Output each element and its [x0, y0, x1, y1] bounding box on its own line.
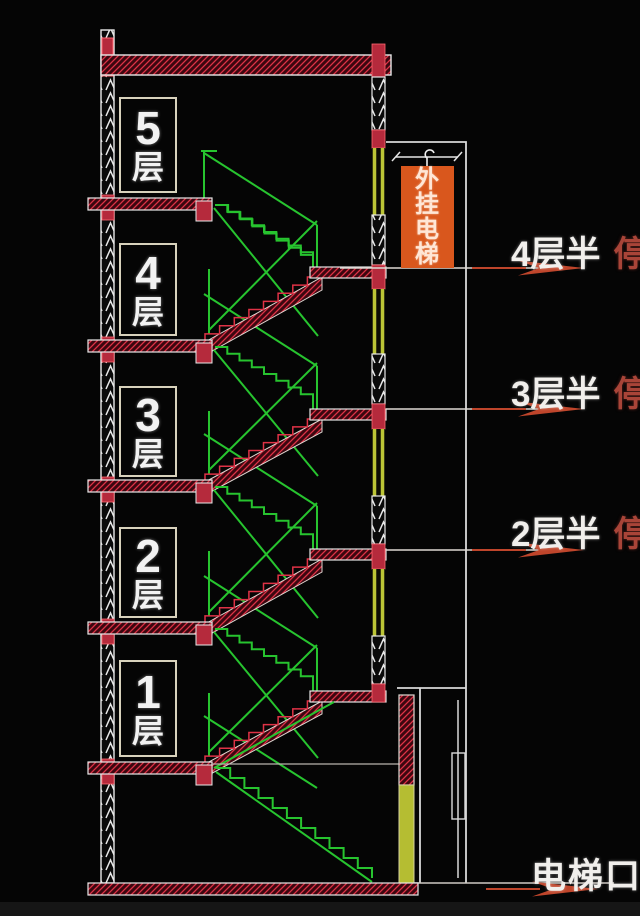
building-section-diagram: 5 层 4 层 3 层 2 层 1 层 外挂电梯 4层半停 3层半停 2层半停 … [0, 0, 640, 916]
rail-joint [372, 44, 385, 77]
floor-slab [88, 340, 212, 352]
stop-level: 3层半 [511, 375, 600, 414]
rail-joint [372, 404, 385, 429]
slab-edge-beam [196, 625, 212, 645]
stair-rail [204, 153, 317, 225]
roof-slab [101, 55, 391, 75]
floor-number: 1 [135, 669, 161, 715]
stop-label-4-5: 4层半停 [511, 226, 640, 277]
floor-label-box-4: 4 层 [119, 243, 177, 336]
floor-slab [88, 480, 212, 492]
floor-label-box-2: 2 层 [119, 527, 177, 618]
floor-unit: 层 [132, 151, 164, 185]
rail-lattice [372, 636, 385, 684]
stair-rail [204, 294, 317, 366]
ground-slab [88, 883, 418, 895]
stop-level: 2层半 [511, 515, 600, 554]
rail-lattice [372, 215, 385, 265]
floor-label-box-5: 5 层 [119, 97, 177, 193]
floor-number: 3 [135, 392, 161, 438]
floor-unit: 层 [132, 296, 164, 330]
left-wall [101, 30, 114, 883]
rail-joint [372, 544, 385, 569]
floor-label-box-3: 3 层 [119, 386, 177, 477]
stop-level: 4层半 [511, 235, 600, 274]
stair-rail [204, 576, 317, 648]
rail-lattice [372, 354, 385, 404]
floor-number: 2 [135, 533, 161, 579]
floor-number: 4 [135, 250, 161, 296]
floor-unit: 层 [132, 579, 164, 613]
floor-slab [88, 198, 212, 210]
shaft-wall-concrete [399, 695, 414, 785]
drawing-root [0, 30, 640, 916]
floor-label-box-1: 1 层 [119, 660, 177, 757]
external-elevator-tag: 外挂电梯 [401, 166, 454, 268]
slab-edge-beam [196, 343, 212, 363]
stop-status: 停 [613, 235, 640, 274]
hoist-hook-icon [425, 150, 434, 166]
elevator-entrance-label: 电梯口 [531, 848, 640, 899]
rail-lattice [372, 77, 385, 130]
stair-steps-green [216, 768, 372, 878]
stair-rail [204, 434, 317, 506]
floor-slab [88, 622, 212, 634]
stop-label-2-5: 2层半停 [511, 506, 640, 557]
rail-lattice [372, 496, 385, 544]
ground-shadow-strip [0, 902, 640, 916]
slab-edge-beam [196, 765, 212, 785]
rail-joint [372, 684, 385, 702]
external-elevator-label: 外挂电梯 [415, 167, 441, 267]
slab-edge-beam [196, 201, 212, 221]
section-drawing-canvas [0, 0, 640, 916]
shaft-wall-yellow [399, 785, 414, 883]
slab-edge-beam [196, 483, 212, 503]
stop-status: 停 [613, 375, 640, 414]
floor-slab [88, 762, 212, 774]
floor-unit: 层 [132, 438, 164, 472]
floor-unit: 层 [132, 715, 164, 749]
stair-diagonal [216, 772, 372, 882]
rail-joint [372, 130, 385, 148]
stair-rail [204, 716, 317, 788]
stop-label-3-5: 3层半停 [511, 366, 640, 417]
floor-number: 5 [135, 105, 161, 151]
stop-status: 停 [613, 515, 640, 554]
